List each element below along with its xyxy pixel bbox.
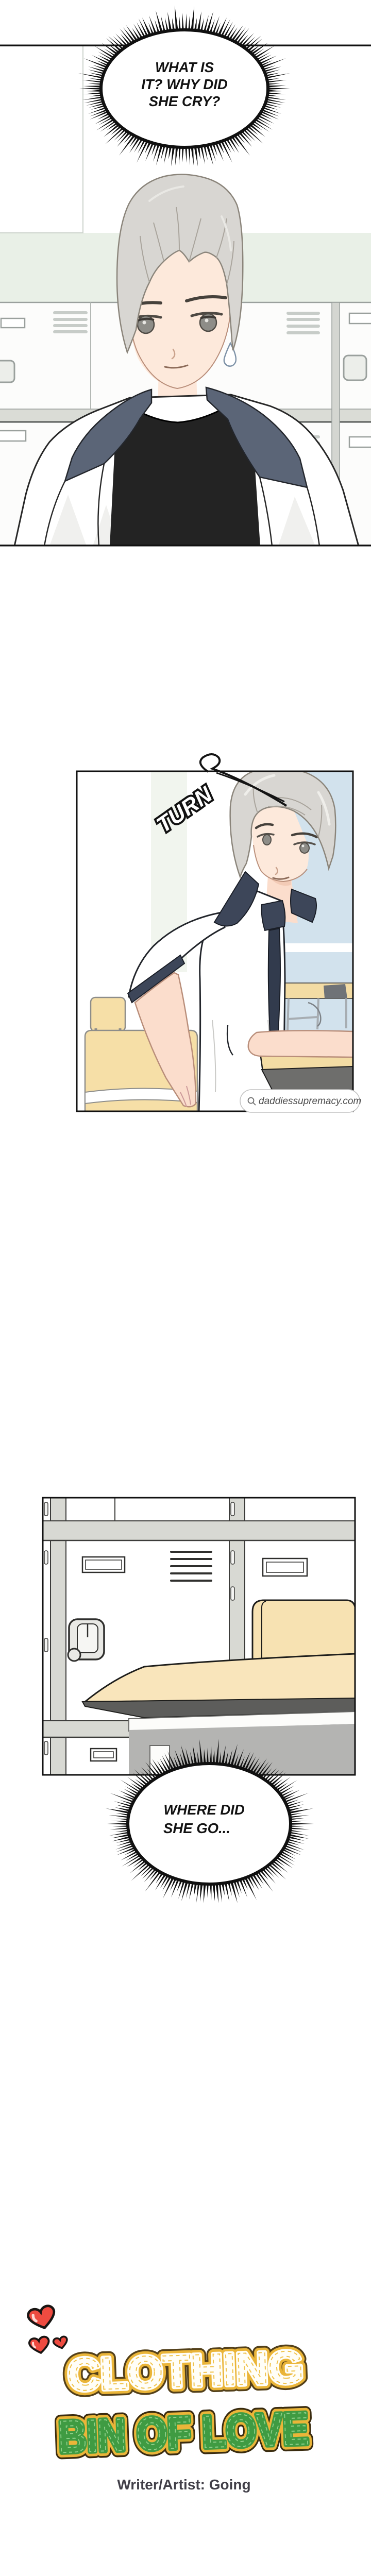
svg-text:SHE CRY?: SHE CRY?: [149, 93, 221, 109]
svg-text:WHAT IS: WHAT IS: [155, 59, 214, 75]
svg-text:IT? WHY DID: IT? WHY DID: [141, 76, 228, 92]
svg-text:WHERE DID: WHERE DID: [163, 1802, 245, 1818]
svg-text:CLOTHING: CLOTHING: [66, 2341, 304, 2400]
svg-text:Writer/Artist: Going: Writer/Artist: Going: [117, 2477, 250, 2493]
svg-text:SHE GO...: SHE GO...: [163, 1820, 230, 1836]
svg-text:BIN OF LOVE: BIN OF LOVE: [57, 2403, 309, 2463]
svg-text:daddiessupremacy.com: daddiessupremacy.com: [259, 1096, 361, 1107]
